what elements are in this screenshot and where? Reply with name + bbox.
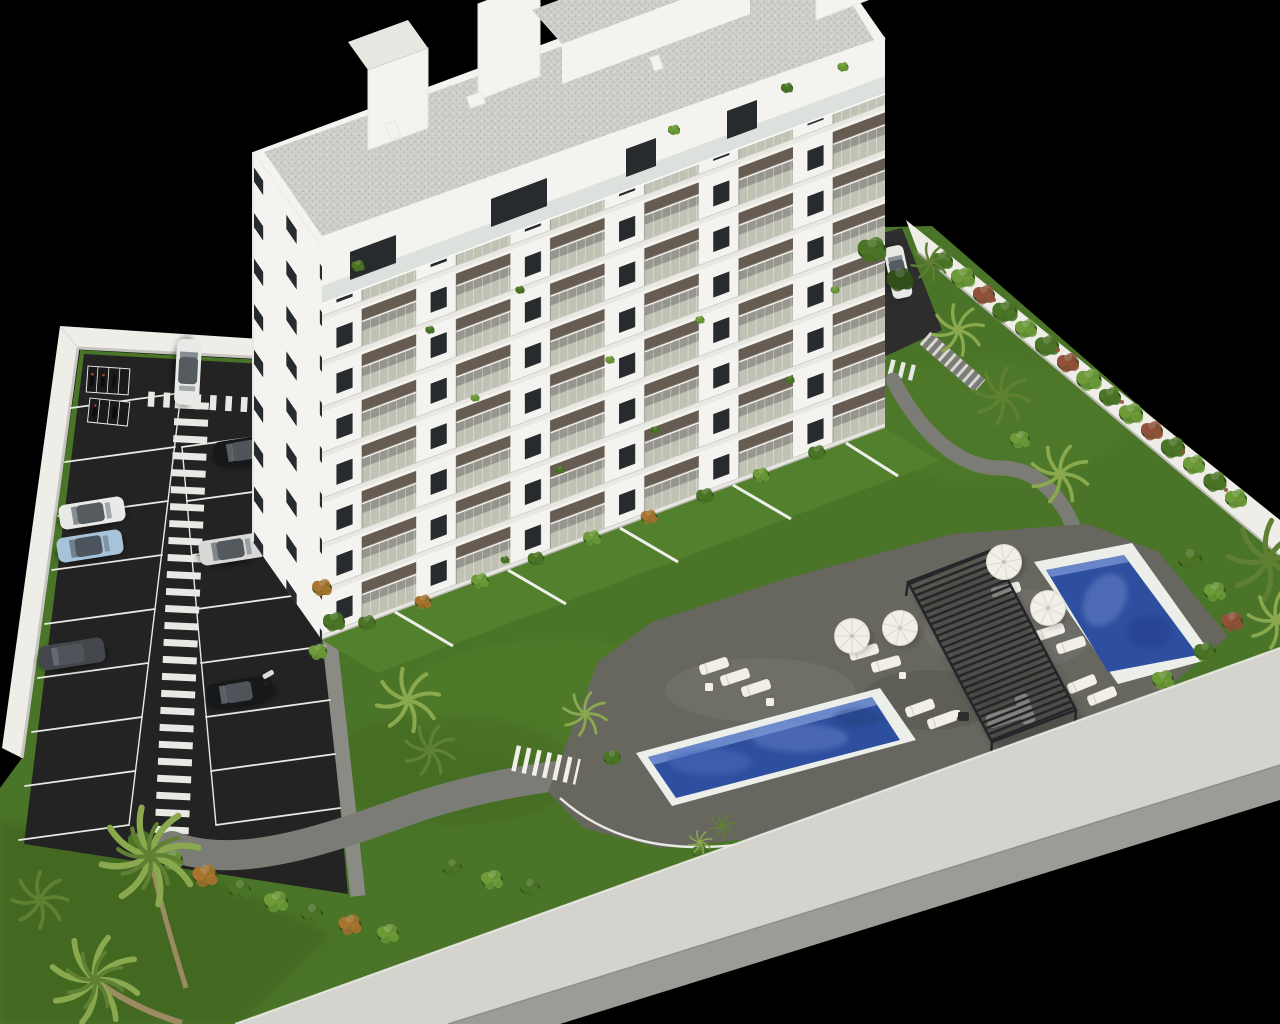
architectural-render: Aerial 3D architectural rendering of a w…	[0, 0, 1280, 1024]
coffee-table	[958, 712, 969, 721]
person	[263, 680, 268, 685]
